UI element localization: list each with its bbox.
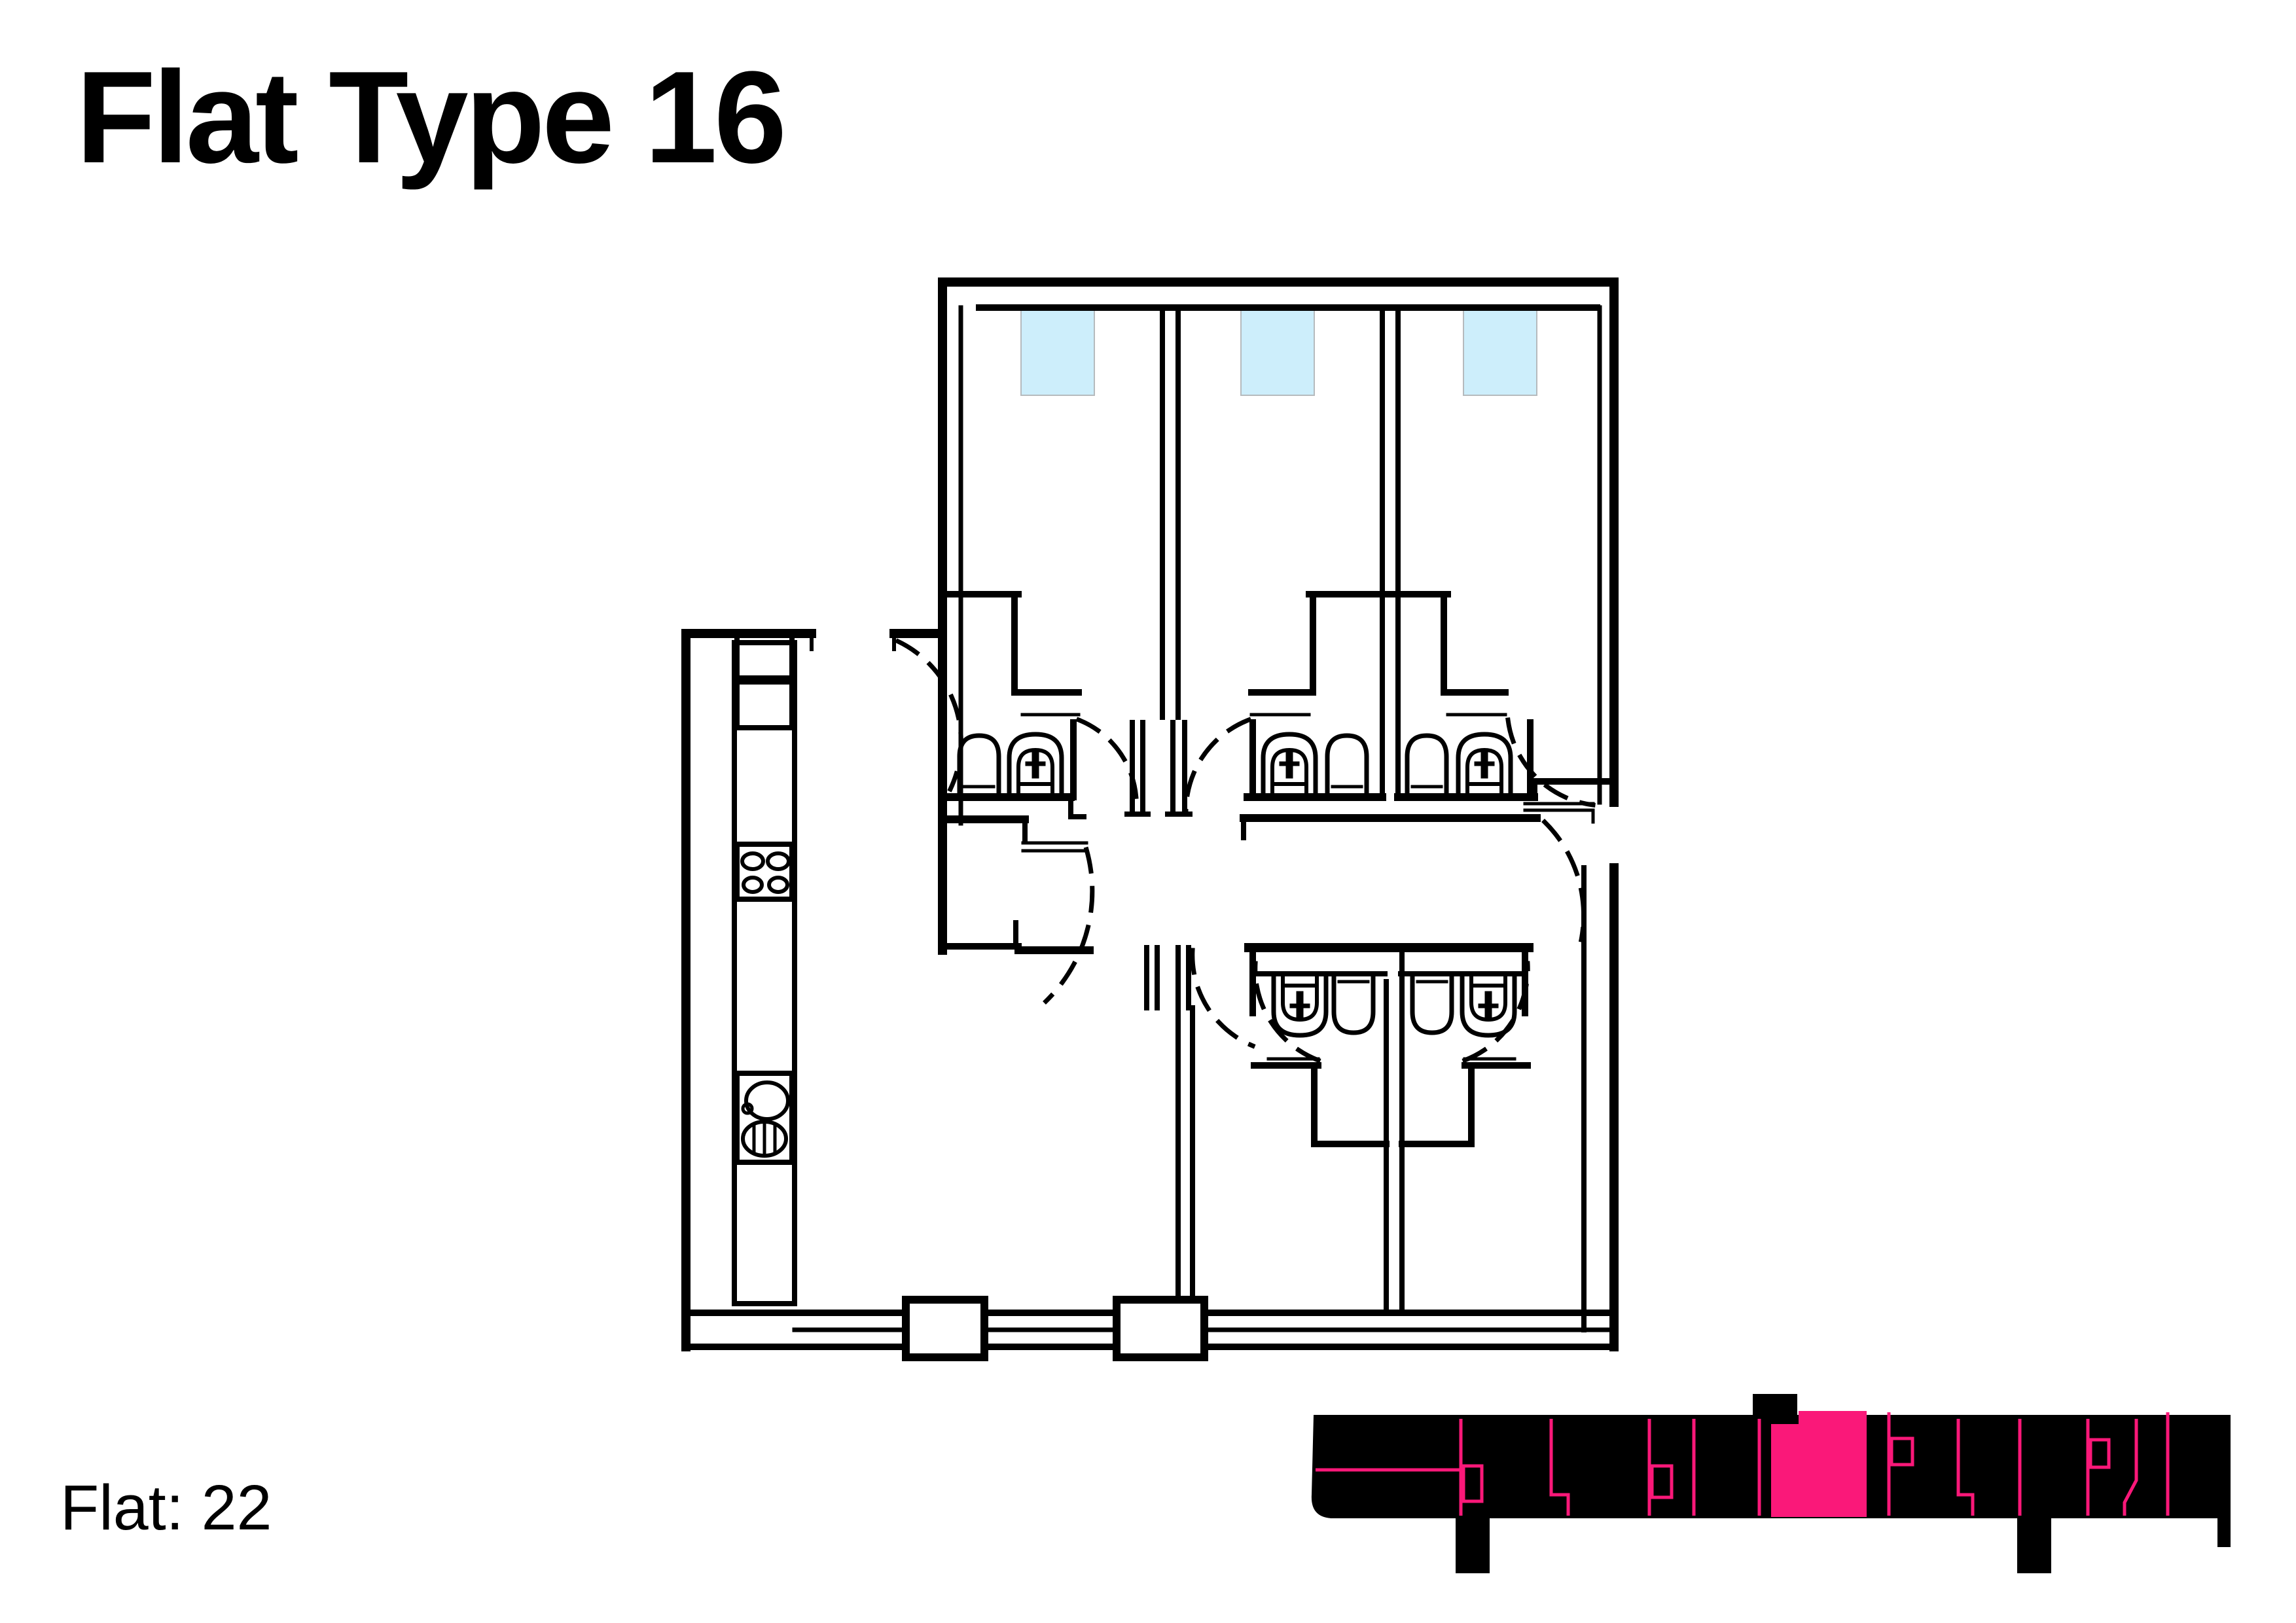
bathroom-platform-walls	[942, 797, 1537, 950]
basin-icon	[1327, 736, 1367, 794]
basin-icon	[1334, 974, 1373, 1033]
bathroom-fixtures	[960, 734, 1515, 1035]
door-arc	[1079, 720, 1136, 811]
floor-plan	[686, 282, 1614, 1357]
door-arc	[1186, 720, 1249, 811]
building-stub	[2017, 1518, 2051, 1573]
wall-pier	[1117, 1300, 1204, 1357]
toilet-icon	[1458, 734, 1511, 796]
bedroom-1-window	[1021, 309, 1094, 395]
basin-icon	[1407, 736, 1446, 794]
toilet-icon	[1274, 974, 1326, 1035]
door-jamb-serifs	[812, 633, 894, 649]
kitchen-counter	[734, 643, 795, 1304]
toilet-icon	[1263, 734, 1316, 796]
highlighted-unit	[1771, 1411, 1867, 1517]
basin-icon	[1412, 974, 1452, 1033]
building-notch	[1753, 1394, 1797, 1420]
wall-pier	[906, 1300, 984, 1357]
door-arc	[1046, 849, 1092, 1001]
door-arc	[1545, 822, 1584, 940]
floor-plan-drawing	[0, 0, 2296, 1623]
kitchen	[734, 635, 795, 1304]
door-arc	[1508, 720, 1593, 805]
door-arc	[898, 641, 961, 789]
bedroom-2-window	[1241, 309, 1314, 395]
kitchen-sink-icon	[737, 1073, 792, 1162]
toilet-icon	[1009, 734, 1062, 796]
sheet: Flat Type 16 Flat: 22	[0, 0, 2296, 1623]
building-stub	[1456, 1518, 1490, 1573]
basin-icon	[960, 736, 999, 794]
key-plan-footprint	[1312, 1394, 2231, 1573]
door-arc	[1193, 950, 1253, 1046]
kitchen-cabinet-lower	[737, 682, 792, 728]
windows	[1021, 309, 1537, 395]
key-plan	[1312, 1394, 2231, 1573]
bedroom-3-window	[1463, 309, 1537, 395]
hob-icon	[737, 844, 792, 899]
south-wall	[686, 1300, 1614, 1357]
building-stub	[2217, 1518, 2231, 1547]
